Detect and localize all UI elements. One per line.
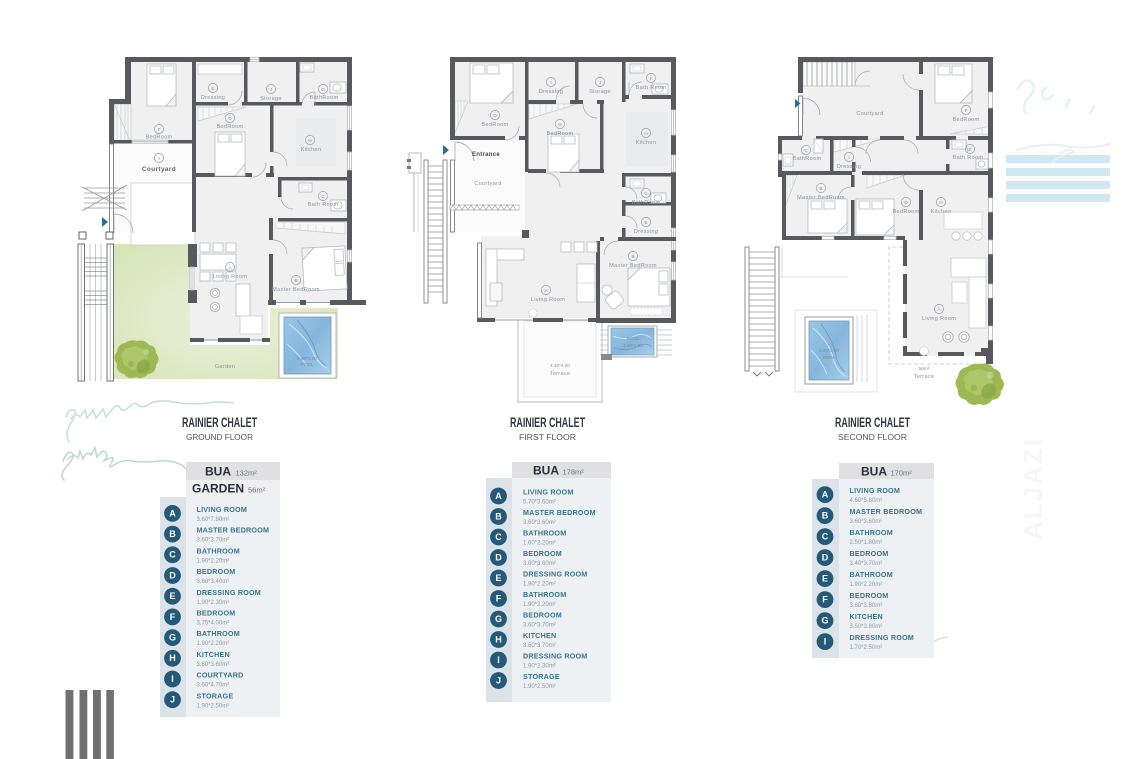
svg-text:C: C (495, 532, 502, 542)
svg-text:Bath Room: Bath Room (308, 202, 339, 208)
svg-text:H: H (939, 200, 942, 205)
svg-text:C: C (822, 532, 829, 542)
svg-text:Entrance: Entrance (472, 152, 500, 158)
svg-text:3.50*3.80m²: 3.50*3.80m² (850, 624, 883, 630)
svg-text:BEDROOM: BEDROOM (197, 567, 236, 576)
svg-text:Living Room: Living Room (213, 274, 247, 280)
svg-text:4.10*4.20: 4.10*4.20 (550, 363, 570, 368)
svg-text:BedRoom: BedRoom (482, 122, 509, 128)
svg-text:MASTER BEDROOM: MASTER BEDROOM (523, 508, 596, 517)
svg-text:E: E (495, 573, 501, 583)
svg-text:BedRoom: BedRoom (146, 135, 173, 141)
svg-text:BUA: BUA (533, 464, 559, 478)
svg-text:GARDEN: GARDEN (192, 482, 244, 496)
svg-text:132m²: 132m² (236, 469, 258, 478)
svg-text:B: B (819, 186, 822, 191)
svg-text:F: F (170, 612, 176, 622)
svg-text:Courtyard: Courtyard (474, 181, 501, 187)
svg-text:STORAGE: STORAGE (197, 691, 234, 700)
svg-text:H: H (308, 138, 311, 143)
svg-text:BathRoom: BathRoom (632, 200, 661, 206)
svg-text:H: H (169, 653, 176, 663)
svg-text:Kitchen: Kitchen (636, 140, 657, 146)
svg-text:POOL: POOL (627, 336, 640, 341)
svg-text:H: H (495, 634, 502, 644)
svg-text:56m²: 56m² (248, 486, 266, 495)
svg-text:G: G (558, 122, 562, 127)
svg-text:POOL: POOL (823, 355, 836, 360)
svg-text:J: J (599, 80, 601, 85)
svg-text:Kitchen: Kitchen (931, 209, 952, 215)
svg-text:D: D (169, 570, 176, 580)
svg-text:1.90*2.30m²: 1.90*2.30m² (523, 664, 556, 670)
svg-text:BedRoom: BedRoom (547, 131, 574, 137)
svg-text:3.60*3.60m²: 3.60*3.60m² (850, 519, 883, 525)
svg-text:G: G (821, 616, 828, 626)
svg-text:1.90*2.50m²: 1.90*2.50m² (197, 703, 230, 709)
svg-text:C: C (169, 550, 176, 560)
svg-text:A: A (169, 508, 176, 518)
svg-text:1.50*2.50: 1.50*2.50 (623, 343, 643, 348)
svg-text:I: I (824, 637, 827, 647)
svg-text:Terrace: Terrace (550, 371, 571, 377)
svg-text:1.90*2.20m²: 1.90*2.20m² (850, 582, 883, 588)
svg-text:J: J (270, 87, 272, 92)
svg-text:178m²: 178m² (563, 468, 585, 477)
svg-text:I: I (171, 674, 174, 684)
svg-text:56m²: 56m² (919, 366, 930, 371)
svg-text:BEDROOM: BEDROOM (850, 549, 889, 558)
svg-text:Garden: Garden (215, 364, 235, 370)
svg-text:E: E (968, 147, 971, 152)
svg-text:F: F (965, 108, 968, 113)
svg-text:3.60*3.60m²: 3.60*3.60m² (197, 662, 230, 668)
svg-text:A: A (822, 490, 829, 500)
svg-text:BEDROOM: BEDROOM (197, 609, 236, 618)
svg-text:F: F (496, 593, 502, 603)
svg-text:Bath Room: Bath Room (953, 155, 984, 161)
svg-text:MASTER BEDROOM: MASTER BEDROOM (197, 526, 270, 535)
svg-text:BathRoom: BathRoom (310, 95, 339, 101)
svg-text:B: B (294, 278, 297, 283)
svg-text:Master BedRoom: Master BedRoom (797, 195, 845, 201)
svg-text:3.40*3.70m²: 3.40*3.70m² (850, 561, 883, 567)
svg-text:ALJAZI: ALJAZI (1018, 437, 1048, 540)
svg-text:G: G (495, 614, 502, 624)
svg-text:3.60*3.70m²: 3.60*3.70m² (523, 643, 556, 649)
svg-text:DRESSING ROOM: DRESSING ROOM (523, 652, 588, 661)
svg-text:B: B (169, 529, 176, 539)
svg-text:BEDROOM: BEDROOM (523, 611, 562, 620)
svg-text:B: B (631, 254, 634, 259)
svg-text:BATHROOM: BATHROOM (197, 546, 240, 555)
svg-text:Dressing: Dressing (837, 164, 861, 170)
svg-text:DRESSING ROOM: DRESSING ROOM (197, 588, 262, 597)
svg-text:DRESSING ROOM: DRESSING ROOM (523, 570, 588, 579)
svg-text:COURTYARD: COURTYARD (197, 671, 244, 680)
svg-text:E: E (169, 591, 175, 601)
svg-text:1.90*2.30m²: 1.90*2.30m² (197, 600, 230, 606)
svg-text:2.50*1.80m²: 2.50*1.80m² (850, 540, 883, 546)
svg-text:BATHROOM: BATHROOM (523, 590, 566, 599)
svg-text:Dressing: Dressing (539, 89, 563, 95)
svg-text:BUA: BUA (861, 465, 887, 479)
svg-text:RAINIER CHALET: RAINIER CHALET (182, 415, 257, 430)
svg-text:E: E (822, 574, 828, 584)
svg-text:KITCHEN: KITCHEN (850, 612, 883, 621)
svg-text:1.70*2.50m²: 1.70*2.50m² (850, 645, 883, 651)
svg-text:LIVING ROOM: LIVING ROOM (197, 505, 248, 514)
svg-text:STORAGE: STORAGE (523, 672, 560, 681)
svg-text:170m²: 170m² (891, 469, 913, 478)
svg-text:I: I (497, 655, 500, 665)
svg-text:F: F (822, 595, 828, 605)
svg-text:BATHROOM: BATHROOM (523, 529, 566, 538)
svg-text:4.60*5.80m²: 4.60*5.80m² (850, 498, 883, 504)
svg-text:Terrace: Terrace (914, 374, 935, 380)
svg-text:H: H (644, 131, 647, 136)
svg-text:LIVING ROOM: LIVING ROOM (850, 486, 901, 495)
svg-text:3.60*3.40m²: 3.60*3.40m² (197, 579, 230, 585)
svg-text:BUA: BUA (205, 465, 231, 479)
svg-text:5.70*3.60m²: 5.70*3.60m² (523, 500, 556, 506)
svg-text:GROUND FLOOR: GROUND FLOOR (186, 433, 253, 442)
svg-text:BATHROOM: BATHROOM (850, 528, 893, 537)
svg-text:POOL: POOL (301, 362, 314, 367)
svg-text:Bath Room: Bath Room (636, 85, 667, 91)
svg-text:B: B (822, 511, 829, 521)
svg-text:3.60*3.60m²: 3.60*3.60m² (523, 561, 556, 567)
svg-text:BEDROOM: BEDROOM (850, 591, 889, 600)
svg-text:G: G (169, 633, 176, 643)
svg-text:LIVING ROOM: LIVING ROOM (523, 488, 574, 497)
svg-text:Kitchen: Kitchen (301, 147, 322, 153)
svg-text:D: D (822, 553, 829, 563)
svg-text:1.90*2.20m²: 1.90*2.20m² (523, 582, 556, 588)
svg-text:BathRoom: BathRoom (793, 156, 822, 162)
svg-text:Master BedRoom: Master BedRoom (272, 287, 320, 293)
svg-text:SECOND FLOOR: SECOND FLOOR (838, 433, 907, 442)
svg-text:3.60*7.80m²: 3.60*7.80m² (197, 517, 230, 523)
svg-text:Storage: Storage (589, 89, 611, 95)
svg-text:Living Room: Living Room (922, 316, 956, 322)
svg-text:B: B (495, 511, 502, 521)
svg-text:E: E (644, 220, 647, 225)
svg-text:1.90*2.50m²: 1.90*2.50m² (523, 684, 556, 690)
svg-text:3.60*3.80m²: 3.60*3.80m² (850, 603, 883, 609)
svg-text:3.60*3.70m²: 3.60*3.70m² (197, 538, 230, 544)
svg-text:2.20*3.20: 2.20*3.20 (819, 348, 839, 353)
svg-text:Master BedRoom: Master BedRoom (609, 263, 657, 269)
svg-text:D: D (495, 552, 502, 562)
svg-text:3.60*3.60m²: 3.60*3.60m² (523, 520, 556, 526)
svg-text:DRESSING ROOM: DRESSING ROOM (850, 633, 915, 642)
svg-text:KITCHEN: KITCHEN (523, 631, 556, 640)
svg-text:RAINIER CHALET: RAINIER CHALET (510, 415, 585, 430)
svg-text:I: I (848, 155, 849, 160)
svg-text:BedRoom: BedRoom (893, 209, 920, 215)
svg-text:3.75*4.00m²: 3.75*4.00m² (197, 621, 230, 627)
svg-text:1.90*2.20m²: 1.90*2.20m² (197, 558, 230, 564)
svg-text:G: G (321, 87, 325, 92)
svg-text:BedRoom: BedRoom (953, 117, 980, 123)
svg-text:MASTER BEDROOM: MASTER BEDROOM (850, 507, 923, 516)
svg-text:3.60*3.70m²: 3.60*3.70m² (523, 623, 556, 629)
svg-text:BEDROOM: BEDROOM (523, 549, 562, 558)
svg-text:J: J (496, 675, 501, 685)
svg-text:A: A (495, 491, 502, 501)
svg-text:Storage: Storage (260, 96, 282, 102)
svg-text:1.90*2.20m²: 1.90*2.20m² (197, 641, 230, 647)
svg-text:1.90*2.20m²: 1.90*2.20m² (523, 602, 556, 608)
svg-text:Dressing: Dressing (634, 229, 658, 235)
svg-text:Courtyard: Courtyard (856, 111, 883, 117)
svg-text:Dressing: Dressing (201, 95, 225, 101)
svg-text:J: J (170, 695, 175, 705)
svg-text:KITCHEN: KITCHEN (197, 650, 230, 659)
svg-text:E: E (211, 86, 214, 91)
svg-text:I: I (550, 80, 551, 85)
svg-text:BATHROOM: BATHROOM (197, 629, 240, 638)
svg-text:Courtyard: Courtyard (142, 166, 176, 173)
svg-text:Living Room: Living Room (531, 297, 565, 303)
svg-text:BATHROOM: BATHROOM (850, 570, 893, 579)
svg-text:RAINIER CHALET: RAINIER CHALET (835, 415, 910, 430)
svg-text:FIRST FLOOR: FIRST FLOOR (519, 433, 576, 442)
svg-text:BedRoom: BedRoom (217, 124, 244, 130)
svg-text:I: I (158, 156, 159, 161)
svg-text:F: F (158, 127, 161, 132)
svg-text:1.60*2.20m²: 1.60*2.20m² (523, 541, 556, 547)
svg-text:3.60*4.70m²: 3.60*4.70m² (197, 683, 230, 689)
svg-text:F: F (650, 76, 653, 81)
svg-text:1.90*3.00: 1.90*3.00 (297, 356, 317, 361)
